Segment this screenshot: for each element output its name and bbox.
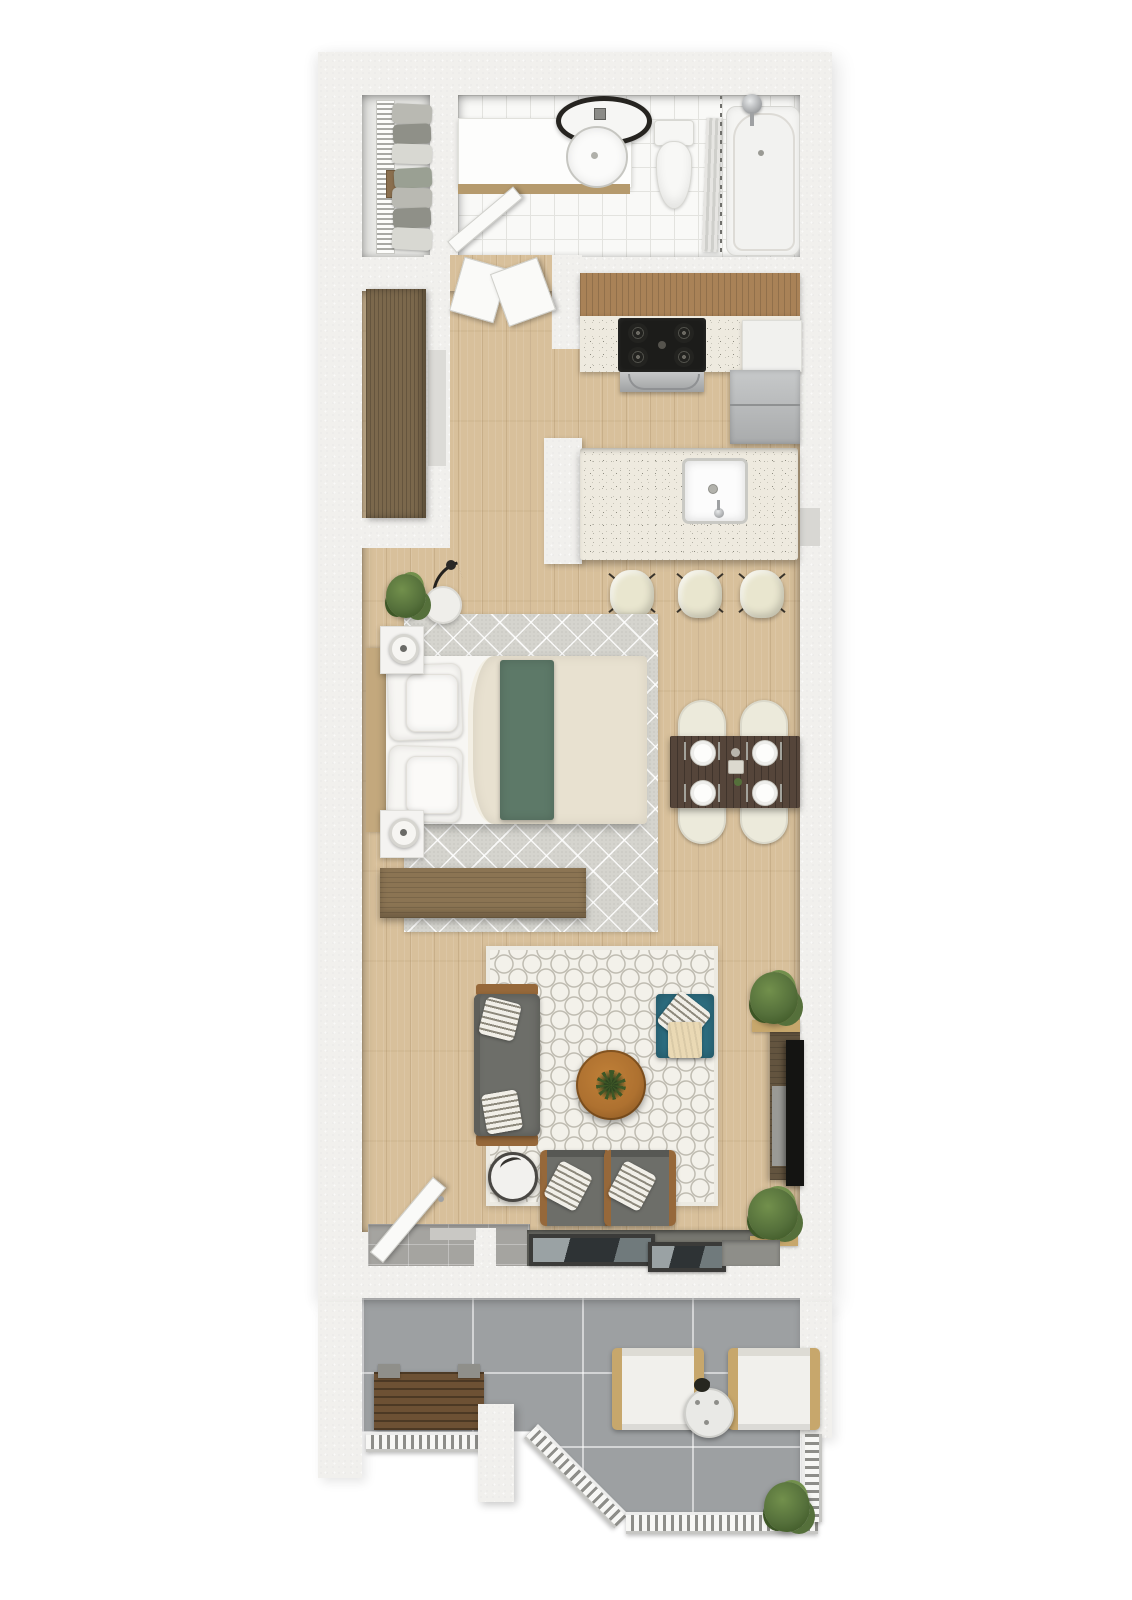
sliding-glass-door [529, 1234, 655, 1266]
sliding-glass-door [648, 1242, 726, 1272]
burner [674, 323, 694, 343]
floor-plan-render [0, 0, 1132, 1600]
teal-chair-throw [668, 1022, 702, 1058]
floor-lamp-base [446, 560, 456, 570]
cutlery [780, 742, 782, 760]
balcony-left-wall [318, 1302, 362, 1478]
cutlery [718, 784, 720, 802]
garment [392, 103, 433, 125]
cutlery [780, 784, 782, 802]
balcony-plant [764, 1482, 810, 1532]
door-jamb [474, 1228, 496, 1266]
burner [628, 347, 648, 367]
pillow-small [406, 756, 458, 814]
basin-drain [591, 152, 598, 159]
tub-faucet [742, 94, 762, 114]
kettle [694, 1378, 710, 1392]
living-plant [750, 972, 798, 1024]
bathtub-basin [733, 113, 795, 251]
refrigerator [730, 370, 800, 444]
living-plant [748, 1188, 798, 1240]
coffee-table-plant [596, 1070, 626, 1100]
balcony-railing [366, 1432, 482, 1452]
wardrobe-cabinet [366, 289, 426, 518]
bedroom-plant [386, 574, 426, 618]
bar-stool [740, 570, 784, 618]
light-fixture-center [594, 108, 606, 120]
door-handle [438, 1196, 444, 1202]
sink-drain [708, 484, 718, 494]
threshold [430, 1228, 476, 1240]
burner [674, 347, 694, 367]
oven-handle-arc [628, 374, 700, 390]
balcony-column [478, 1404, 514, 1502]
duvet [468, 656, 647, 824]
refrigerator-door-line [730, 404, 800, 406]
cutlery [746, 784, 748, 802]
tub-drain [758, 150, 764, 156]
cutlery [684, 742, 686, 760]
balcony-bench [374, 1372, 484, 1430]
cooktop-knob [658, 341, 666, 349]
place-setting [752, 780, 778, 806]
centerpiece-tray [728, 760, 744, 774]
place-setting [690, 740, 716, 766]
centerpiece-bowl [731, 748, 740, 757]
curtain-rod [720, 96, 722, 252]
headboard [366, 648, 386, 832]
table-leg-dot [714, 1400, 719, 1405]
table-leg-dot [704, 1420, 709, 1425]
garment [392, 143, 433, 164]
kitchen-wall-stub [552, 255, 582, 349]
bistro-table [684, 1388, 734, 1438]
place-setting [690, 780, 716, 806]
white-cabinet [742, 320, 802, 372]
bar-stool [610, 570, 654, 618]
niche-inset-panel [428, 350, 446, 466]
cutlery [684, 784, 686, 802]
centerpiece-sprig [734, 778, 742, 786]
right-wall-notch [800, 508, 820, 546]
garment [392, 187, 433, 208]
pillow-small [406, 674, 458, 732]
island-end-cap [544, 438, 582, 564]
dresser [380, 868, 586, 918]
garment [393, 123, 432, 144]
cutlery [718, 742, 720, 760]
table-leg-dot [695, 1400, 700, 1405]
sofa-pillow [481, 1089, 523, 1135]
floor-lamp-shade [424, 586, 462, 624]
place-setting [752, 740, 778, 766]
green-throw [500, 660, 554, 820]
slider-fixed-panel [722, 1240, 780, 1266]
bench-cushion [378, 1364, 400, 1378]
bench-cushion [458, 1364, 480, 1378]
garment [391, 227, 432, 251]
burner [628, 323, 648, 343]
lamp-center [400, 829, 407, 836]
niche-bottom-wall [362, 518, 450, 548]
island-faucet-stem [717, 500, 720, 510]
upper-cabinets [580, 273, 800, 319]
tub-faucet-stem [750, 112, 754, 126]
garment [394, 167, 433, 189]
lounge-chair [728, 1348, 820, 1430]
garment [393, 207, 432, 228]
lamp-center [400, 645, 407, 652]
television [786, 1040, 804, 1186]
cutlery [746, 742, 748, 760]
bar-stool [678, 570, 722, 618]
